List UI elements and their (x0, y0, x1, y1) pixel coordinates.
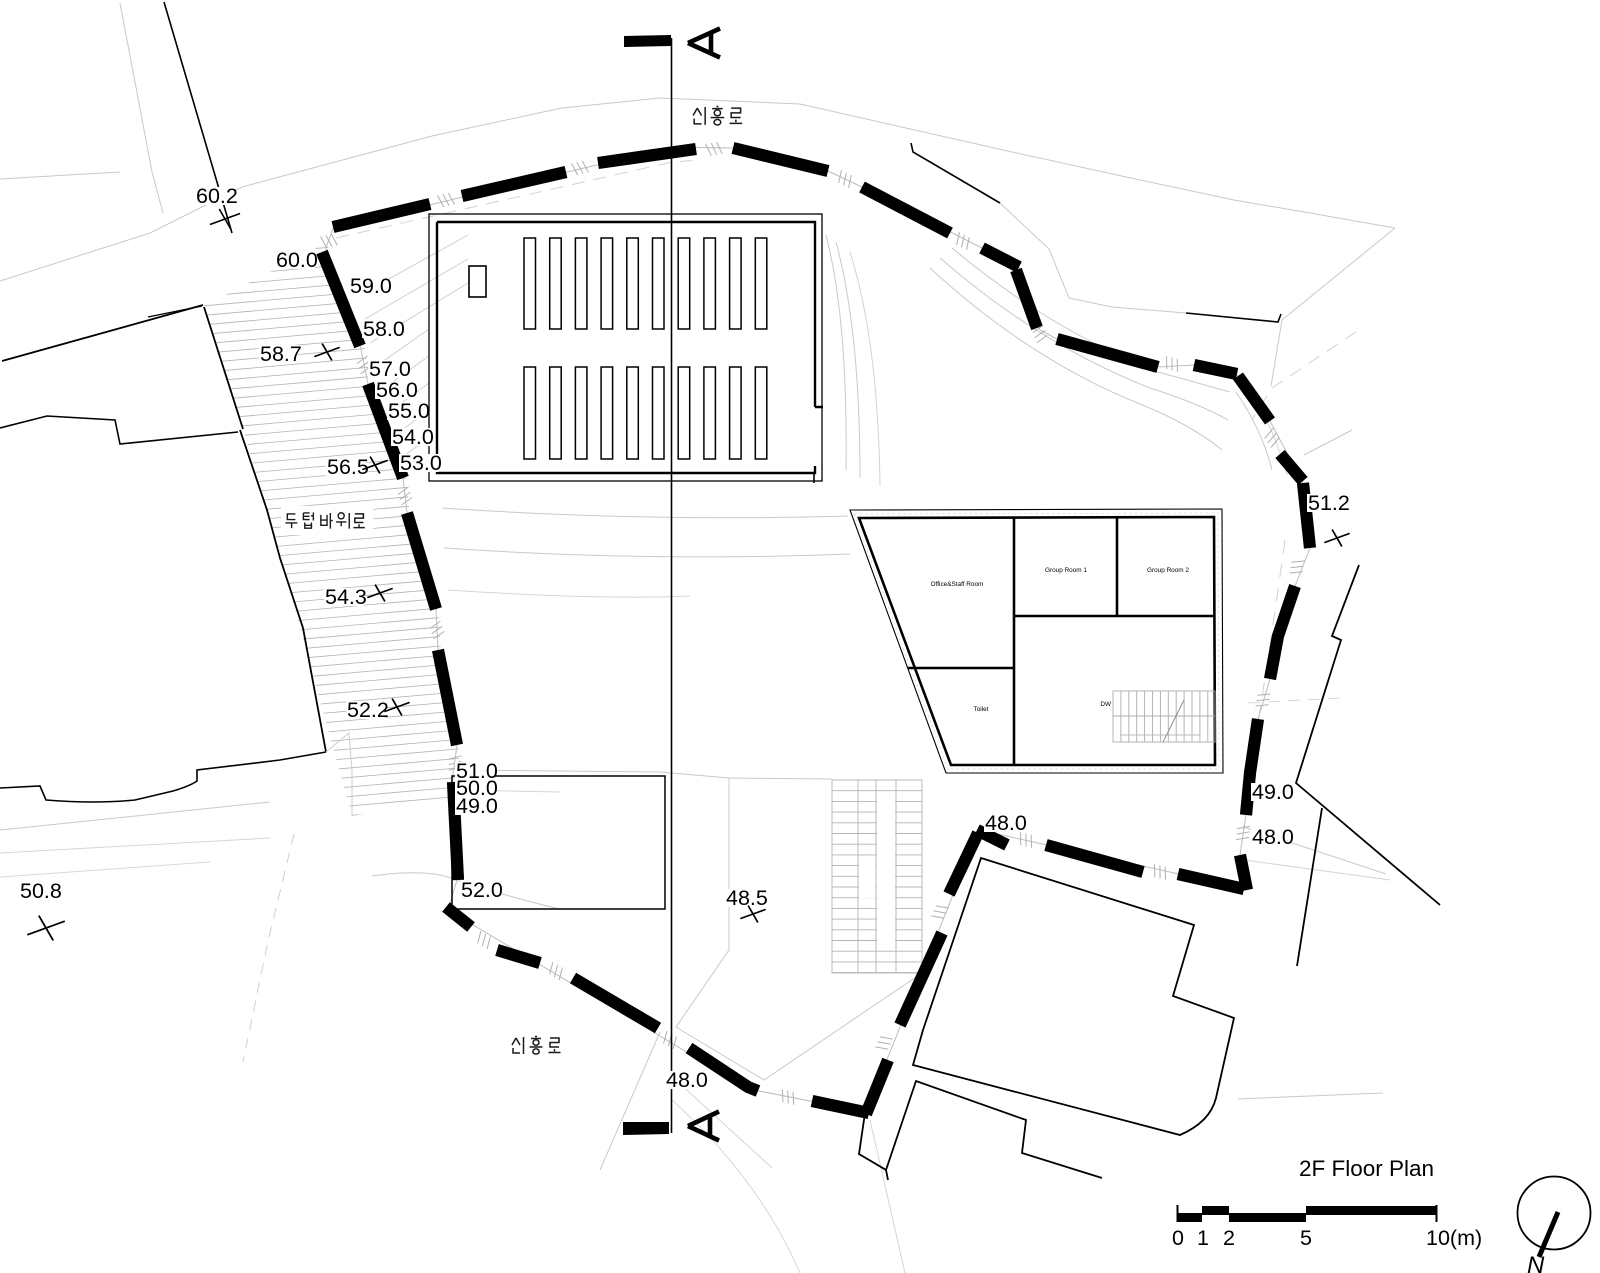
svg-text:Group Room 2: Group Room 2 (1147, 567, 1189, 574)
svg-text:54.0: 54.0 (392, 425, 434, 449)
svg-text:1: 1 (1197, 1226, 1209, 1250)
svg-text:50.8: 50.8 (20, 879, 62, 903)
svg-text:56.5: 56.5 (327, 455, 369, 479)
svg-text:55.0: 55.0 (388, 399, 430, 423)
svg-text:51.2: 51.2 (1308, 491, 1350, 515)
svg-text:49.0: 49.0 (1252, 780, 1294, 804)
svg-text:N: N (1527, 1252, 1545, 1273)
svg-text:48.0: 48.0 (666, 1068, 708, 1092)
svg-text:DW: DW (1100, 701, 1112, 708)
svg-text:2: 2 (1223, 1226, 1235, 1250)
svg-text:48.5: 48.5 (726, 886, 768, 910)
svg-text:Toilet: Toilet (974, 706, 989, 713)
svg-text:53.0: 53.0 (400, 451, 442, 475)
svg-text:48.0: 48.0 (1252, 825, 1294, 849)
svg-text:59.0: 59.0 (350, 274, 392, 298)
svg-text:0: 0 (1172, 1226, 1184, 1250)
svg-text:2F Floor Plan: 2F Floor Plan (1299, 1156, 1434, 1181)
svg-text:5: 5 (1300, 1226, 1312, 1250)
svg-text:48.0: 48.0 (985, 811, 1027, 835)
svg-text:60.2: 60.2 (196, 184, 238, 208)
svg-text:60.0: 60.0 (276, 248, 318, 272)
svg-text:Office&Staff Room: Office&Staff Room (931, 581, 984, 588)
svg-text:52.2: 52.2 (347, 698, 389, 722)
svg-text:49.0: 49.0 (456, 794, 498, 818)
svg-text:58.7: 58.7 (260, 342, 302, 366)
svg-text:10(m): 10(m) (1426, 1226, 1482, 1250)
svg-text:58.0: 58.0 (363, 317, 405, 341)
svg-text:Group Room 1: Group Room 1 (1045, 567, 1087, 574)
svg-text:54.3: 54.3 (325, 585, 367, 609)
svg-text:52.0: 52.0 (461, 878, 503, 902)
